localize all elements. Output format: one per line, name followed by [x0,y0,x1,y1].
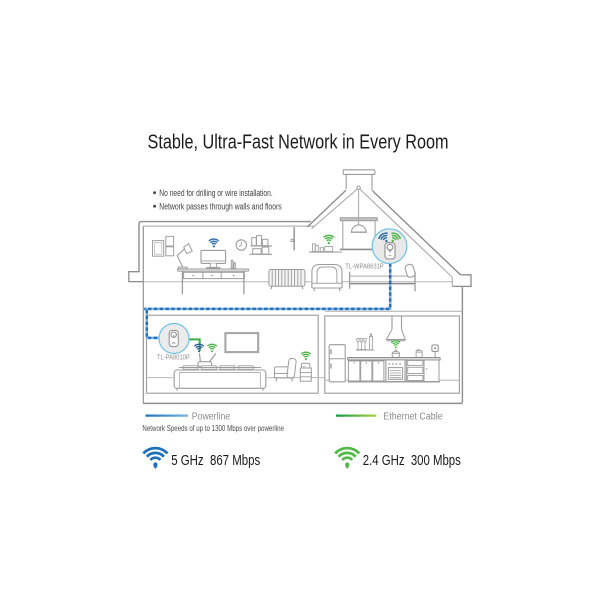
svg-text:Network passes through walls a: Network passes through walls and floors [159,202,282,213]
svg-text:5 GHz 867 Mbps: 5 GHz 867 Mbps [171,452,260,469]
svg-text:Network Speeds of up to 1300 M: Network Speeds of up to 1300 Mbps over p… [142,424,284,433]
svg-text:TL-PA8010P: TL-PA8010P [157,355,190,362]
svg-text:No need for drilling or wire i: No need for drilling or wire installatio… [159,188,272,199]
svg-text:2.4 GHz 300 Mbps: 2.4 GHz 300 Mbps [363,452,461,469]
svg-text:TL-WPA8631P: TL-WPA8631P [345,263,384,270]
svg-text:Ethernet Cable: Ethernet Cable [383,411,443,422]
svg-text:Powerline: Powerline [192,411,231,422]
svg-text:Stable, Ultra-Fast Network in: Stable, Ultra-Fast Network in Every Room [148,132,449,154]
